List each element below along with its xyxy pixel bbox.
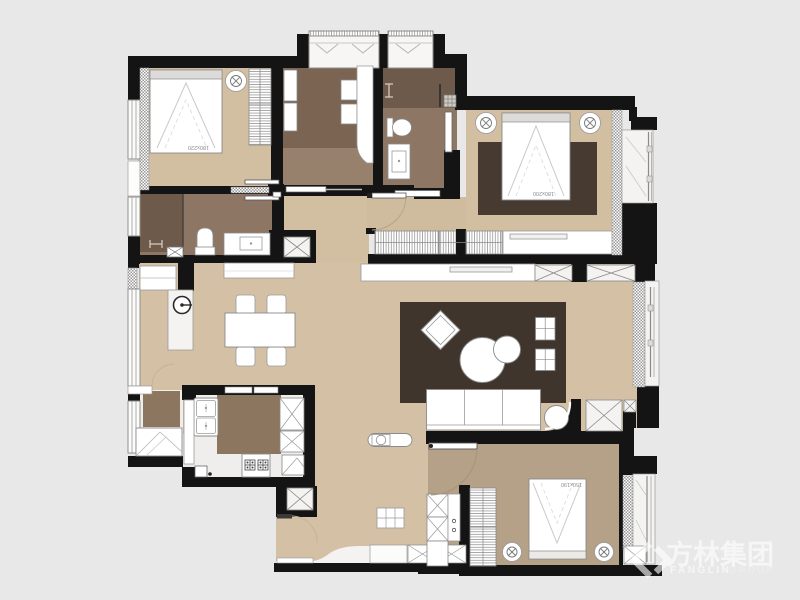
svg-text:180x200: 180x200: [533, 190, 554, 196]
svg-text:150x190: 150x190: [561, 481, 582, 487]
svg-text:FANGLIN: FANGLIN: [670, 565, 731, 576]
svg-text:GROUP: GROUP: [729, 565, 775, 576]
svg-text:180x220: 180x220: [188, 144, 209, 150]
